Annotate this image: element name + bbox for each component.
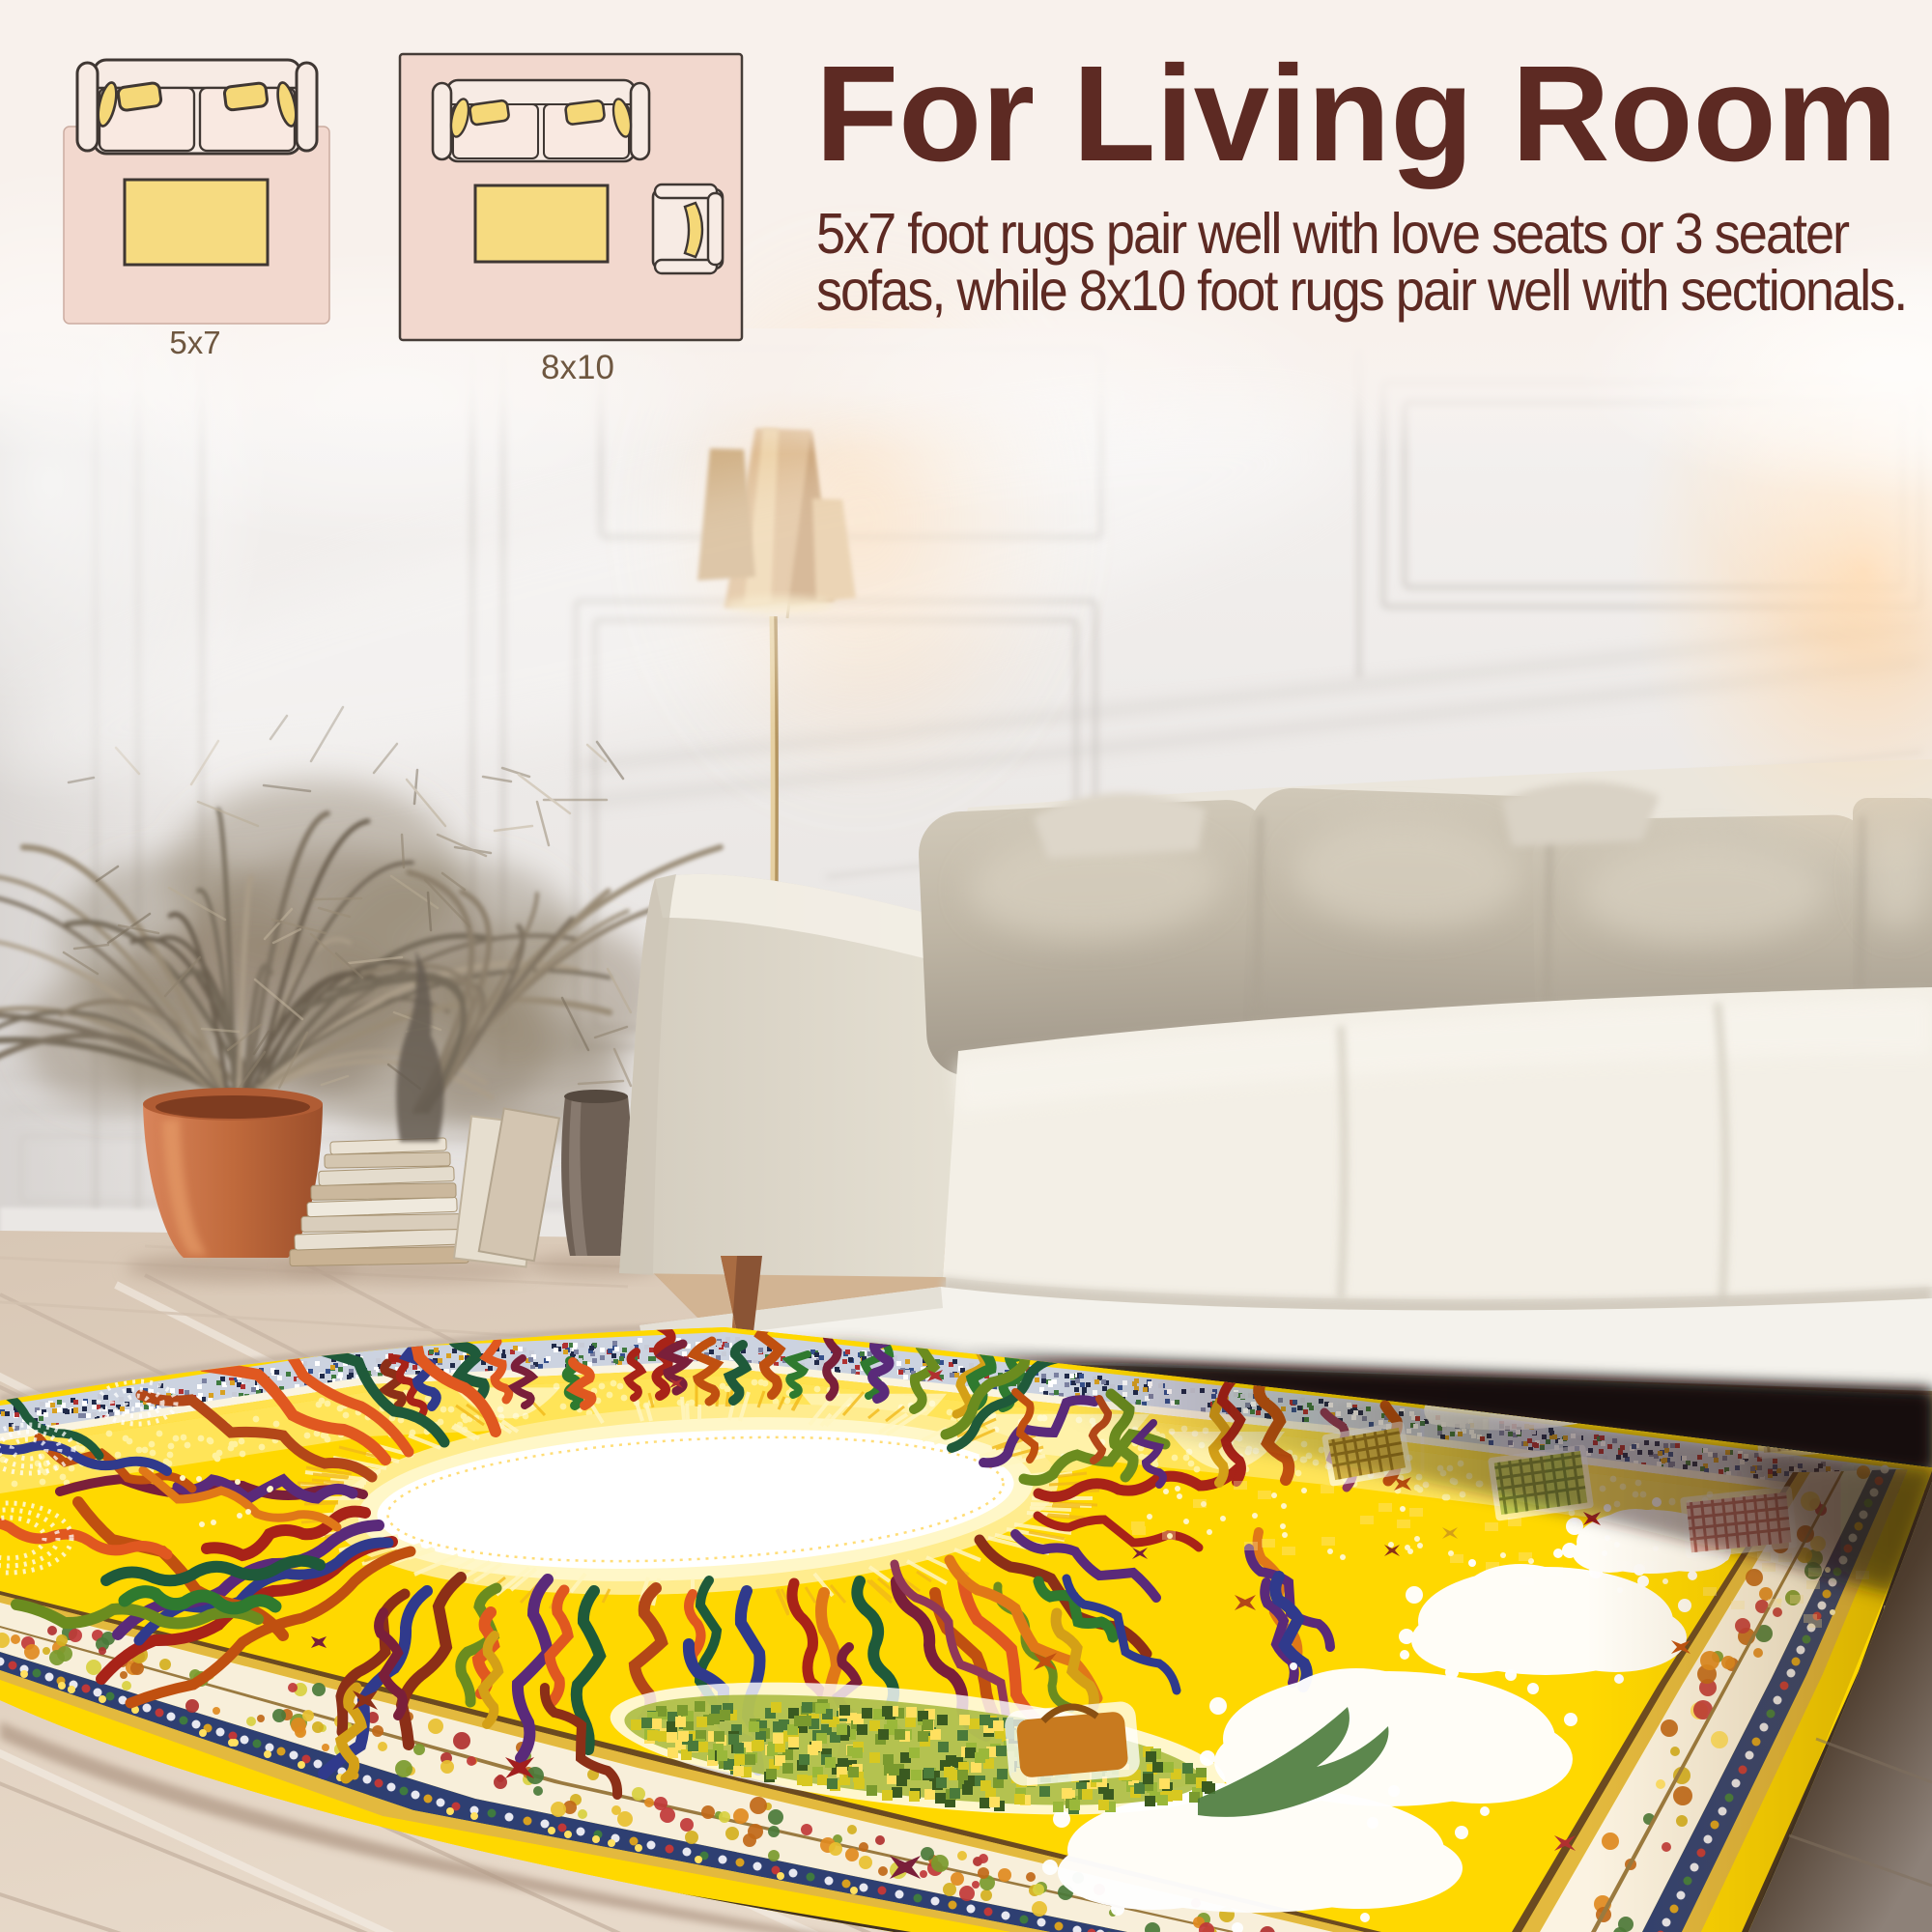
svg-text:8x10: 8x10 [541, 349, 614, 386]
svg-text:5x7: 5x7 [169, 325, 220, 360]
